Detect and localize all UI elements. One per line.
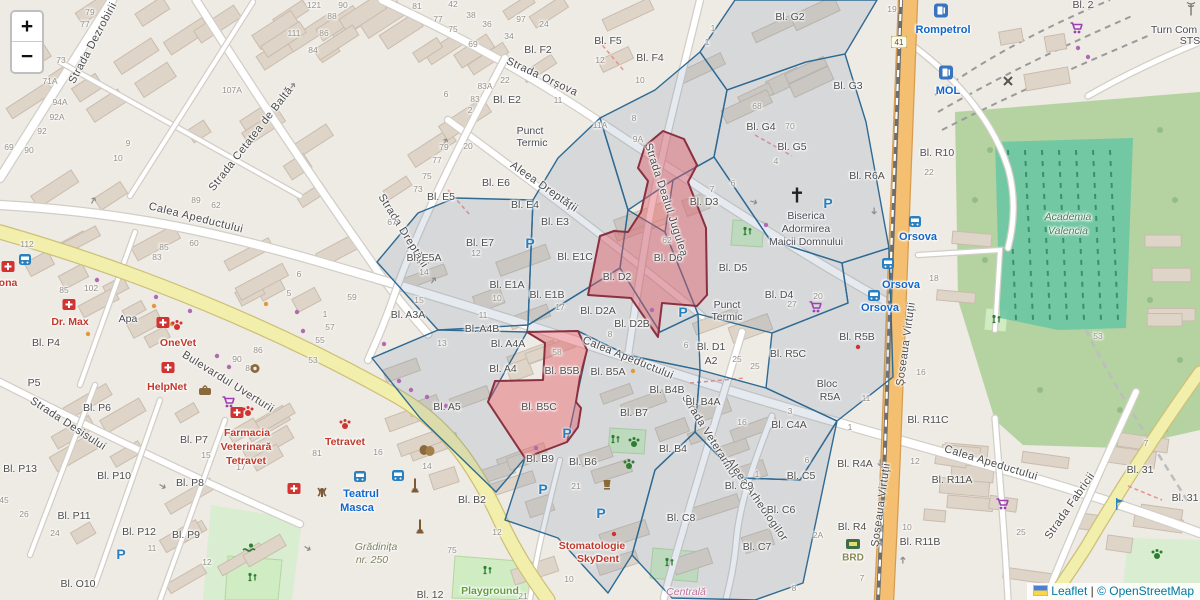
map-canvas[interactable]: ➜➜➜➜➜➜➜➜➜➜➜➜ Strada DezrobiriiStrada Cet… <box>0 0 1200 600</box>
ukraine-flag-icon <box>1033 585 1048 596</box>
openstreetmap-link[interactable]: © OpenStreetMap <box>1097 584 1194 598</box>
zoom-out-button[interactable]: − <box>12 42 42 72</box>
attribution: Leaflet | © OpenStreetMap <box>1027 583 1200 600</box>
leaflet-link[interactable]: Leaflet <box>1051 584 1087 598</box>
svg-text:➜: ➜ <box>898 556 909 564</box>
zoom-control: + − <box>10 10 44 74</box>
map-geometry: ➜➜➜➜➜➜➜➜➜➜➜➜ <box>0 0 1200 600</box>
attribution-separator: | <box>1087 584 1097 598</box>
svg-text:➜: ➜ <box>286 80 300 93</box>
svg-text:➜: ➜ <box>874 459 885 467</box>
svg-text:➜: ➜ <box>156 480 169 494</box>
zoom-in-button[interactable]: + <box>12 12 42 42</box>
svg-text:➜: ➜ <box>868 207 879 215</box>
svg-text:➜: ➜ <box>301 542 314 556</box>
